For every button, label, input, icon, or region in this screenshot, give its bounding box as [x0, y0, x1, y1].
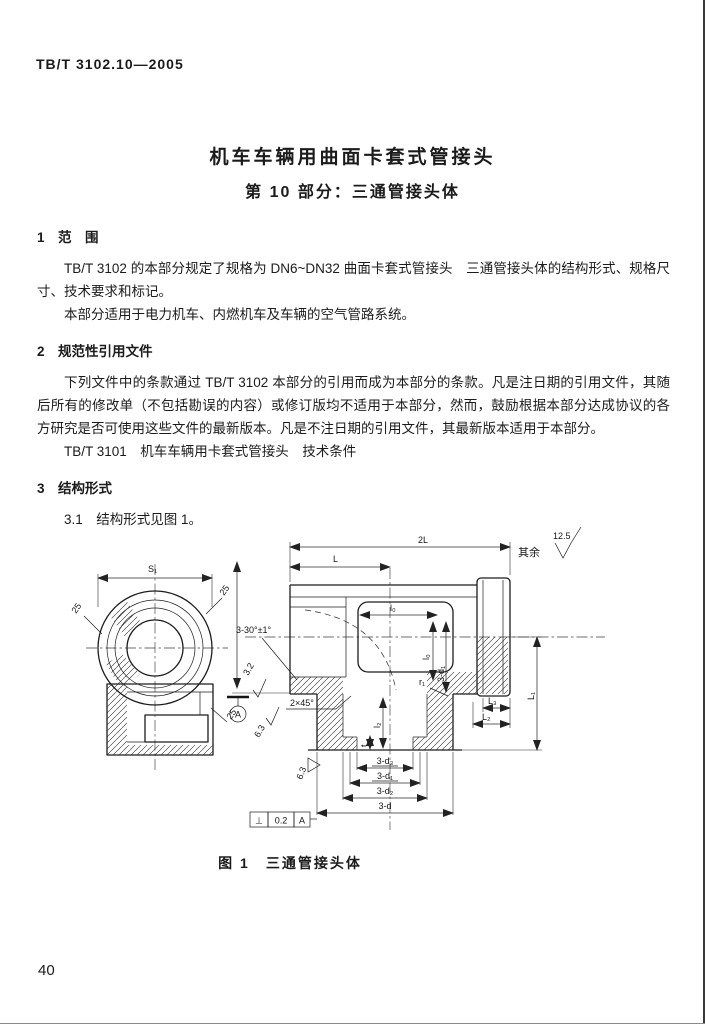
dim-label-l0: l₀	[390, 603, 396, 613]
section-2-paragraph-1: 下列文件中的条款通过 TB/T 3102 本部分的引用而成为本部分的条款。凡是注…	[37, 371, 670, 440]
datum-letter: A	[235, 710, 241, 720]
roughness-label: 25	[69, 601, 83, 615]
tolerance-symbol: ⊥	[255, 816, 263, 826]
dim-label-2l: 2L	[418, 535, 428, 545]
section-1-paragraph-1: TB/T 3102 的本部分规定了规格为 DN6~DN32 曲面卡套式管接头 三…	[37, 257, 670, 303]
document-body: 1 范 围 TB/T 3102 的本部分规定了规格为 DN6~DN32 曲面卡套…	[37, 226, 670, 531]
dim-label-3d3: 3-d₃	[377, 756, 394, 766]
chamfer-label: 2×45°	[290, 698, 314, 708]
dim-label-l2-small: l₂	[372, 722, 382, 728]
roughness-3-2: 3.2	[241, 661, 256, 677]
dim-label-3d1: 3-d₁	[377, 771, 393, 781]
dim-label-l0-vertical: l₀	[421, 654, 431, 660]
dim-label-angle: 3-30°±1°	[236, 625, 272, 635]
dim-label-s1: S₁	[148, 564, 157, 574]
roughness-icon	[253, 679, 266, 697]
general-roughness-note: 其余 12.5	[518, 527, 581, 559]
section-3-heading: 3 结构形式	[37, 477, 670, 500]
dim-label-L3: L₃	[488, 696, 497, 706]
dim-label-3d2: 3-d₂	[377, 786, 394, 796]
figure-1-caption: 图 1 三通管接头体	[0, 853, 580, 873]
tolerance-value: 0.2	[275, 816, 288, 826]
tolerance-frame: ⊥ 0.2 A	[250, 812, 317, 827]
dim-label-3d1-vertical: 3-d₁	[436, 666, 446, 682]
section-1-heading: 1 范 围	[37, 226, 670, 249]
document-title: 机车车辆用曲面卡套式管接头 第 10 部分：三通管接头体	[0, 142, 705, 202]
dim-label-l: L	[333, 554, 338, 564]
figure-1-drawing: S₁ 25 25 25	[50, 512, 660, 847]
tolerance-datum: A	[299, 816, 305, 826]
dim-label-3d: 3-d	[378, 801, 391, 811]
figure-1: S₁ 25 25 25	[50, 512, 660, 847]
section-view: 2L L l₀ l₀ 3-d₁ r₁ A 3-30°±1° 3.2 2×45°	[227, 527, 605, 830]
dim-label-L1: L₁	[526, 692, 536, 700]
roughness-icon	[308, 758, 320, 772]
dim-label-r1: r₁	[419, 677, 425, 687]
section-2-reference: TB/T 3101 机车车辆用卡套式管接头 技术条件	[37, 440, 670, 463]
title-line-1: 机车车辆用曲面卡套式管接头	[0, 142, 705, 169]
roughness-note-prefix: 其余	[518, 545, 540, 559]
roughness-6-3-b: 6.3	[294, 766, 308, 781]
document-page: TB/T 3102.10—2005 机车车辆用曲面卡套式管接头 第 10 部分：…	[0, 0, 705, 1024]
roughness-label: 25	[217, 583, 231, 597]
title-line-2: 第 10 部分：三通管接头体	[0, 178, 705, 202]
section-1-paragraph-2: 本部分适用于电力机车、内燃机车及车辆的空气管路系统。	[37, 303, 670, 326]
standard-code: TB/T 3102.10—2005	[36, 56, 184, 72]
page-number: 40	[38, 962, 55, 979]
roughness-note-value: 12.5	[553, 531, 571, 541]
roughness-icon	[266, 707, 279, 725]
section-2-heading: 2 规范性引用文件	[37, 340, 670, 363]
dim-label-L2: L₂	[482, 712, 491, 722]
dim-label-t: t	[359, 744, 369, 747]
left-view: S₁ 25 25 25	[69, 564, 238, 772]
roughness-6-3-a: 6.3	[252, 723, 267, 739]
